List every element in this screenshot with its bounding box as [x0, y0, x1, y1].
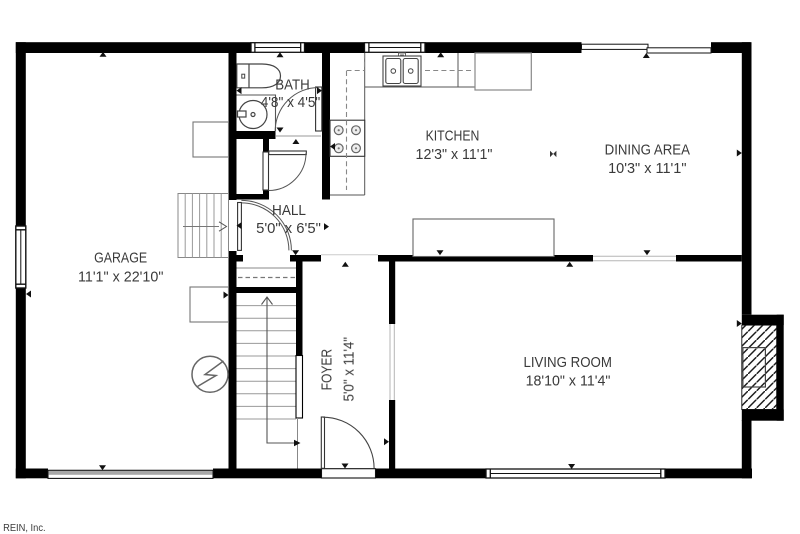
svg-text:11'1" x 22'10": 11'1" x 22'10": [78, 268, 164, 285]
svg-text:DINING AREA: DINING AREA: [605, 141, 690, 158]
svg-text:FOYER: FOYER: [319, 349, 336, 391]
svg-text:HALL: HALL: [272, 202, 306, 219]
svg-text:REIN, Inc.: REIN, Inc.: [3, 523, 46, 534]
svg-text:5'0" x 6'5": 5'0" x 6'5": [256, 220, 321, 237]
svg-text:KITCHEN: KITCHEN: [426, 128, 480, 145]
svg-text:18'10" x 11'4": 18'10" x 11'4": [526, 373, 611, 390]
svg-text:GARAGE: GARAGE: [94, 249, 147, 266]
svg-text:12'3" x 11'1": 12'3" x 11'1": [416, 146, 493, 163]
svg-text:5'0" x 11'4": 5'0" x 11'4": [341, 337, 358, 402]
svg-text:LIVING ROOM: LIVING ROOM: [523, 354, 612, 371]
svg-text:BATH: BATH: [275, 77, 310, 94]
svg-text:4'8" x 4'5": 4'8" x 4'5": [261, 94, 321, 111]
svg-text:10'3" x 11'1": 10'3" x 11'1": [608, 160, 686, 177]
